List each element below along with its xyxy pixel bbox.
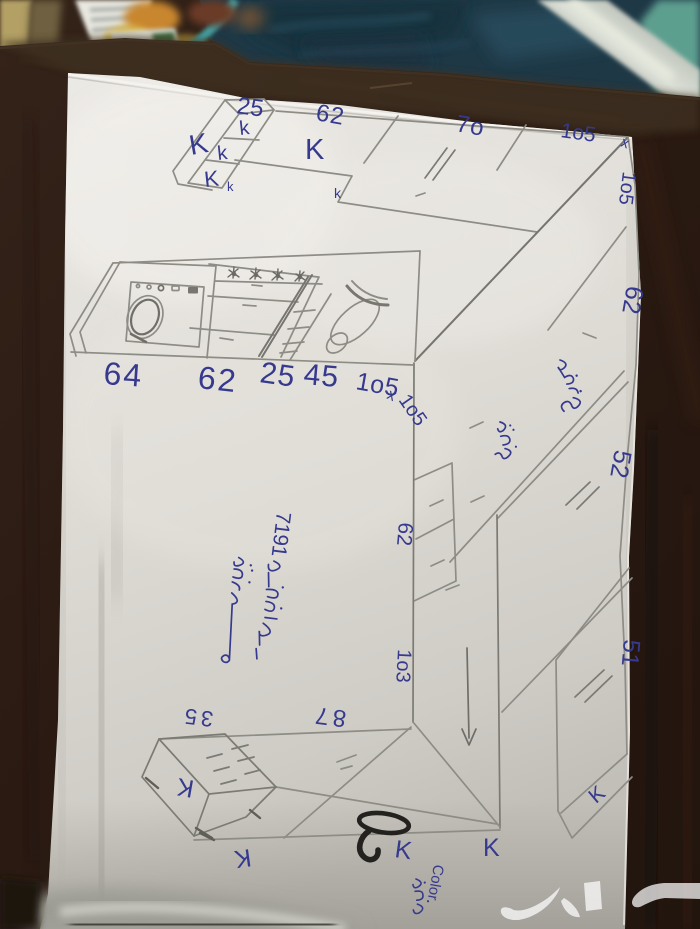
- svg-text:1o5: 1o5: [614, 170, 640, 206]
- svg-text:45: 45: [302, 358, 340, 394]
- svg-text:K: K: [305, 134, 325, 166]
- svg-text:62: 62: [314, 99, 347, 131]
- svg-text:25: 25: [258, 356, 298, 394]
- svg-text:7o: 7o: [454, 110, 487, 142]
- svg-text:k: k: [227, 179, 234, 194]
- svg-text:62: 62: [392, 522, 417, 547]
- svg-text:87: 87: [310, 701, 348, 732]
- svg-text:k: k: [334, 185, 342, 201]
- svg-text:64: 64: [103, 355, 145, 394]
- svg-text:51: 51: [616, 638, 645, 667]
- svg-text:62: 62: [196, 359, 239, 399]
- svg-text:35: 35: [179, 703, 214, 732]
- svg-text:K: K: [203, 166, 221, 192]
- svg-text:1o3: 1o3: [391, 649, 415, 683]
- svg-text:62: 62: [616, 284, 648, 316]
- svg-text:K: K: [483, 834, 500, 862]
- svg-text:1o5: 1o5: [559, 119, 597, 147]
- svg-text:52: 52: [604, 448, 636, 480]
